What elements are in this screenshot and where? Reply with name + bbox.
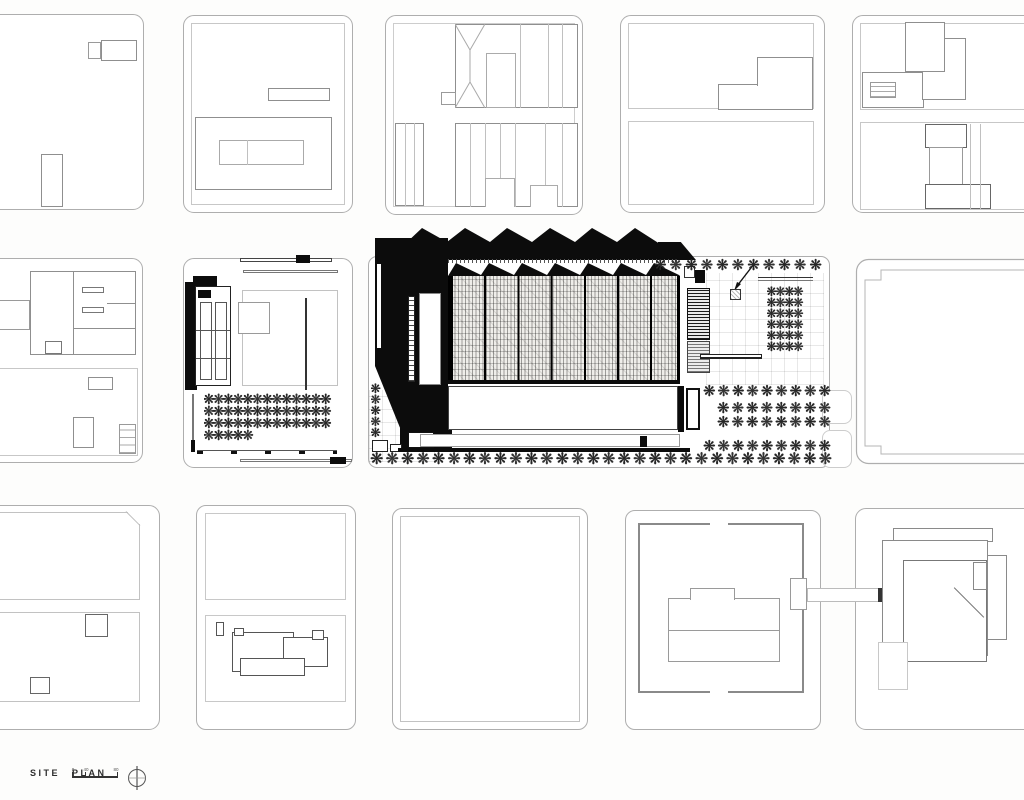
building-w-shed [88, 377, 113, 390]
tree-icon: ❋ [741, 452, 754, 468]
tree-icon: ❋ [819, 452, 832, 468]
north-arrow-icon [125, 765, 149, 791]
tree-icon: ❋ [633, 452, 646, 468]
tree-icon: ❋ [509, 452, 522, 468]
tree-icon: ❋ [775, 384, 788, 399]
city-block-e [855, 258, 1024, 465]
building-w-arm [0, 300, 30, 330]
tree-icon: ❋ [695, 452, 708, 468]
wall-line [247, 140, 248, 165]
building-ne-wing-top [905, 22, 945, 72]
parcel-s1-upper [205, 513, 346, 600]
sidewalk-bar-bottom-cap [330, 457, 346, 464]
building-n2-notch [441, 92, 456, 105]
tree-icon: ❋ [670, 258, 683, 273]
tree-icon: ❋ [732, 384, 745, 399]
glazed-hall-roof [448, 276, 680, 382]
sidewalk-bar-bottom [197, 450, 337, 454]
building-n3-step-upper [757, 57, 813, 86]
parcel-n3-lower [628, 121, 814, 205]
wall-line [548, 24, 549, 108]
tree-icon: ❋ [447, 452, 460, 468]
building-ne-south-b [929, 147, 963, 185]
tree-icon: ❋ [587, 452, 600, 468]
grove-plaza: ❋❋❋❋❋❋❋❋❋❋❋❋❋❋❋❋❋❋❋❋❋❋❋❋ [767, 286, 807, 376]
wall-line [562, 123, 563, 207]
tree-icon: ❋ [664, 452, 677, 468]
building-nw-small-annex [88, 42, 101, 59]
tree-icon: ❋ [809, 258, 822, 273]
tree-icon: ❋ [602, 452, 615, 468]
wall-line [970, 124, 971, 209]
tower-core [198, 290, 211, 298]
building-s3-bar-lower [668, 630, 780, 662]
tree-icon: ❋ [370, 452, 383, 468]
building-ne-louver [870, 82, 896, 98]
building-n2-upper-room [486, 53, 516, 108]
ramp-hatched-upper [687, 288, 710, 340]
building-n2-west [395, 123, 424, 206]
building-s1-south [240, 658, 305, 676]
tree-icon: ❋ [747, 258, 760, 273]
tree-icon: ❋ [525, 452, 538, 468]
courtyard-cap-west [440, 386, 448, 432]
scale-tick-0: 0 [72, 767, 75, 772]
parcel-se-small [878, 642, 908, 690]
building-s1-kiosk [216, 622, 224, 636]
sky-bridge-joint [878, 588, 882, 602]
bench-top-east [758, 277, 813, 281]
building-sw-square [85, 614, 108, 637]
tree-icon: ❋ [757, 452, 770, 468]
building-n1-bar [268, 88, 330, 101]
annotation-target-object [730, 289, 741, 300]
building-ne-south-c [925, 184, 991, 209]
wall-line [196, 330, 230, 331]
tree-icon: ❋ [701, 258, 714, 273]
courtyard-cap-east [678, 386, 684, 432]
wall-line [414, 123, 415, 206]
garden-wall [305, 298, 307, 390]
tree-icon: ❋ [788, 452, 801, 468]
building-s1-tab-1 [234, 628, 244, 636]
tree-icon: ❋ [789, 415, 802, 430]
building-n1-inner [219, 140, 304, 165]
chamfer-cover [128, 511, 141, 524]
tree-icon: ❋ [717, 384, 730, 399]
scale-tick-40: 40 [83, 767, 88, 772]
s3-gate-north [710, 519, 728, 527]
building-w-entry [45, 341, 62, 354]
tree-icon: ❋ [320, 416, 332, 430]
tree-icon: ❋ [775, 415, 788, 430]
building-n2-lower-step [530, 185, 558, 207]
grove-west-block: ❋❋❋❋❋❋❋❋❋❋❋❋❋❋❋❋❋❋❋❋❋❋❋❋❋❋❋❋❋❋❋❋❋❋❋❋❋❋❋❋… [204, 393, 337, 449]
tree-icon: ❋ [804, 384, 817, 399]
wall-line [405, 123, 406, 206]
building-w-bar-2 [82, 307, 104, 313]
wall-line [73, 328, 136, 329]
stair-strip [408, 296, 415, 382]
building-s3-bar-upper [668, 598, 780, 631]
building-sw-edge [30, 677, 50, 694]
wall-line [980, 124, 981, 209]
tree-icon: ❋ [716, 258, 729, 273]
tree-icon: ❋ [818, 415, 831, 430]
tower-slot-2 [215, 302, 227, 380]
building-se-side [985, 555, 1007, 640]
wall-line [515, 123, 516, 207]
sidewalk-bar-2 [243, 270, 338, 273]
scale-bar: 0 40 80 [72, 766, 118, 778]
tree-icon: ❋ [463, 452, 476, 468]
parcel-s2 [400, 516, 580, 722]
building-se-niche [973, 562, 987, 590]
bench-mid-plaza [700, 354, 762, 359]
parcel-w-lower [0, 368, 138, 456]
tree-icon: ❋ [818, 384, 831, 399]
building-s1-tab-2 [312, 630, 324, 640]
tree-icon: ❋ [778, 258, 791, 273]
sidewalk-bar-top [240, 258, 332, 262]
tree-icon: ❋ [648, 452, 661, 468]
tree-icon: ❋ [732, 258, 745, 273]
site-plan-sheet: ❋❋❋❋❋❋❋❋❋❋❋❋❋❋❋❋❋❋❋❋❋❋❋❋❋❋❋❋❋❋❋❋❋❋❋❋❋❋❋❋… [0, 0, 1024, 800]
trees-row-parking-1: ❋❋❋❋❋❋❋❋❋ [703, 384, 831, 399]
courtyard-west [419, 293, 441, 385]
tower-slot-1 [200, 302, 212, 380]
tree-icon: ❋ [703, 384, 716, 399]
parcel-sw-upper [0, 512, 140, 600]
tree-icon: ❋ [726, 452, 739, 468]
building-w-gridhouse [119, 424, 136, 454]
wall-line [107, 303, 136, 304]
tree-icon: ❋ [571, 452, 584, 468]
east-annex [686, 388, 700, 430]
tree-icon: ❋ [794, 258, 807, 273]
tree-icon: ❋ [746, 384, 759, 399]
lightwell-slit [377, 264, 381, 348]
tree-icon: ❋ [790, 384, 803, 399]
building-s3-step [690, 588, 735, 600]
building-nw-bar [101, 40, 137, 61]
tree-icon: ❋ [793, 340, 804, 353]
tree-icon: ❋ [710, 452, 723, 468]
wall-line [73, 271, 74, 355]
s3-gate-south [710, 689, 728, 697]
building-nw-tower [41, 154, 63, 207]
building-pavilion [238, 302, 270, 334]
tree-icon: ❋ [618, 452, 631, 468]
tree-icon: ❋ [746, 415, 759, 430]
tree-icon: ❋ [761, 384, 774, 399]
sky-bridge [807, 588, 882, 602]
tree-icon: ❋ [731, 415, 744, 430]
tree-icon: ❋ [760, 415, 773, 430]
tree-icon: ❋ [717, 415, 730, 430]
tree-icon: ❋ [556, 452, 569, 468]
tree-icon: ❋ [401, 452, 414, 468]
tree-icon: ❋ [803, 452, 816, 468]
arcade-door [640, 436, 647, 447]
tree-icon: ❋ [763, 258, 776, 273]
edge-wall-west-cap [191, 440, 195, 452]
building-n2-lower-notch [485, 178, 515, 207]
tree-icon: ❋ [804, 415, 817, 430]
building-s3-link [790, 578, 807, 610]
wall-line [520, 24, 521, 108]
trees-row-parking-3: ❋❋❋❋❋❋❋❋ [717, 415, 831, 430]
hall-south-wall [448, 380, 680, 384]
tree-icon: ❋ [416, 452, 429, 468]
tree-icon: ❋ [685, 258, 698, 273]
tree-icon: ❋ [654, 258, 667, 273]
wall-line [196, 358, 230, 359]
skylight-gutter [448, 259, 680, 263]
tree-icon: ❋ [494, 452, 507, 468]
parcel-sw-lower [0, 612, 140, 702]
sidewalk-bar-top-cap [296, 255, 310, 263]
tree-icon: ❋ [478, 452, 491, 468]
wall-line [470, 123, 471, 207]
tree-icon: ❋ [540, 452, 553, 468]
reflecting-court [448, 386, 678, 430]
scale-tick-80: 80 [113, 767, 118, 772]
trees-row-central-top: ❋❋❋❋❋❋❋❋❋❋❋ [654, 257, 822, 273]
building-w-garage [73, 417, 94, 448]
building-n2-lower [455, 123, 578, 207]
building-w-bar-1 [82, 287, 104, 293]
wall-line [562, 24, 563, 108]
building-ne-south-a [925, 124, 967, 148]
tree-icon: ❋ [772, 452, 785, 468]
tree-icon: ❋ [242, 428, 254, 442]
hip-roof-lines [455, 24, 485, 108]
trees-row-street-south: ❋❋❋❋❋❋❋❋❋❋❋❋❋❋❋❋❋❋❋❋❋❋❋❋❋❋❋❋❋❋ [370, 452, 832, 468]
tree-icon: ❋ [385, 452, 398, 468]
building-n3-step-lower [718, 84, 813, 110]
tree-icon: ❋ [679, 452, 692, 468]
tree-icon: ❋ [371, 426, 381, 439]
tree-icon: ❋ [432, 452, 445, 468]
trees-col-west-edge: ❋❋❋❋❋ [371, 383, 385, 451]
